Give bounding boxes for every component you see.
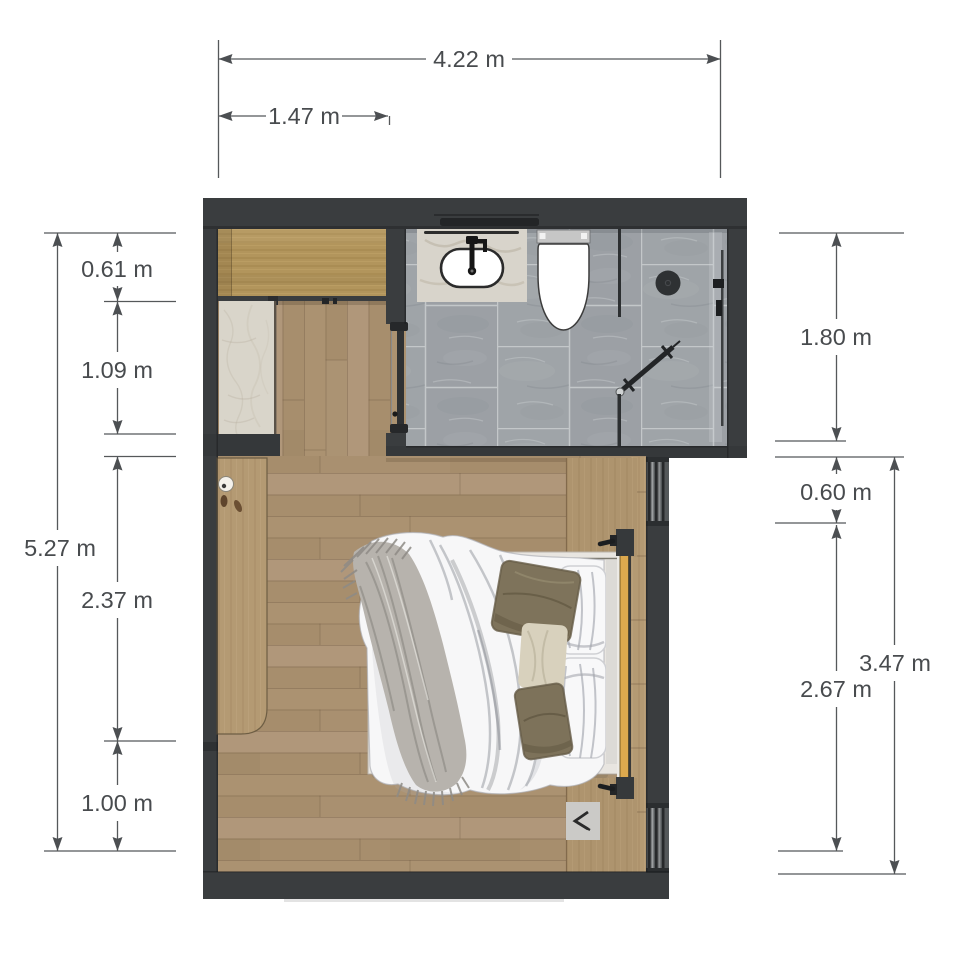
svg-text:0.61 m: 0.61 m <box>81 256 153 282</box>
svg-text:1.09 m: 1.09 m <box>81 357 153 383</box>
svg-text:5.27 m: 5.27 m <box>24 535 96 561</box>
svg-text:2.67 m: 2.67 m <box>800 676 872 702</box>
svg-text:0.60 m: 0.60 m <box>800 479 872 505</box>
svg-text:4.22 m: 4.22 m <box>433 46 505 72</box>
svg-text:2.37 m: 2.37 m <box>81 587 153 613</box>
svg-text:1.00 m: 1.00 m <box>81 790 153 816</box>
svg-text:3.47 m: 3.47 m <box>859 650 931 676</box>
svg-text:1.47 m: 1.47 m <box>268 103 340 129</box>
svg-text:1.80 m: 1.80 m <box>800 324 872 350</box>
